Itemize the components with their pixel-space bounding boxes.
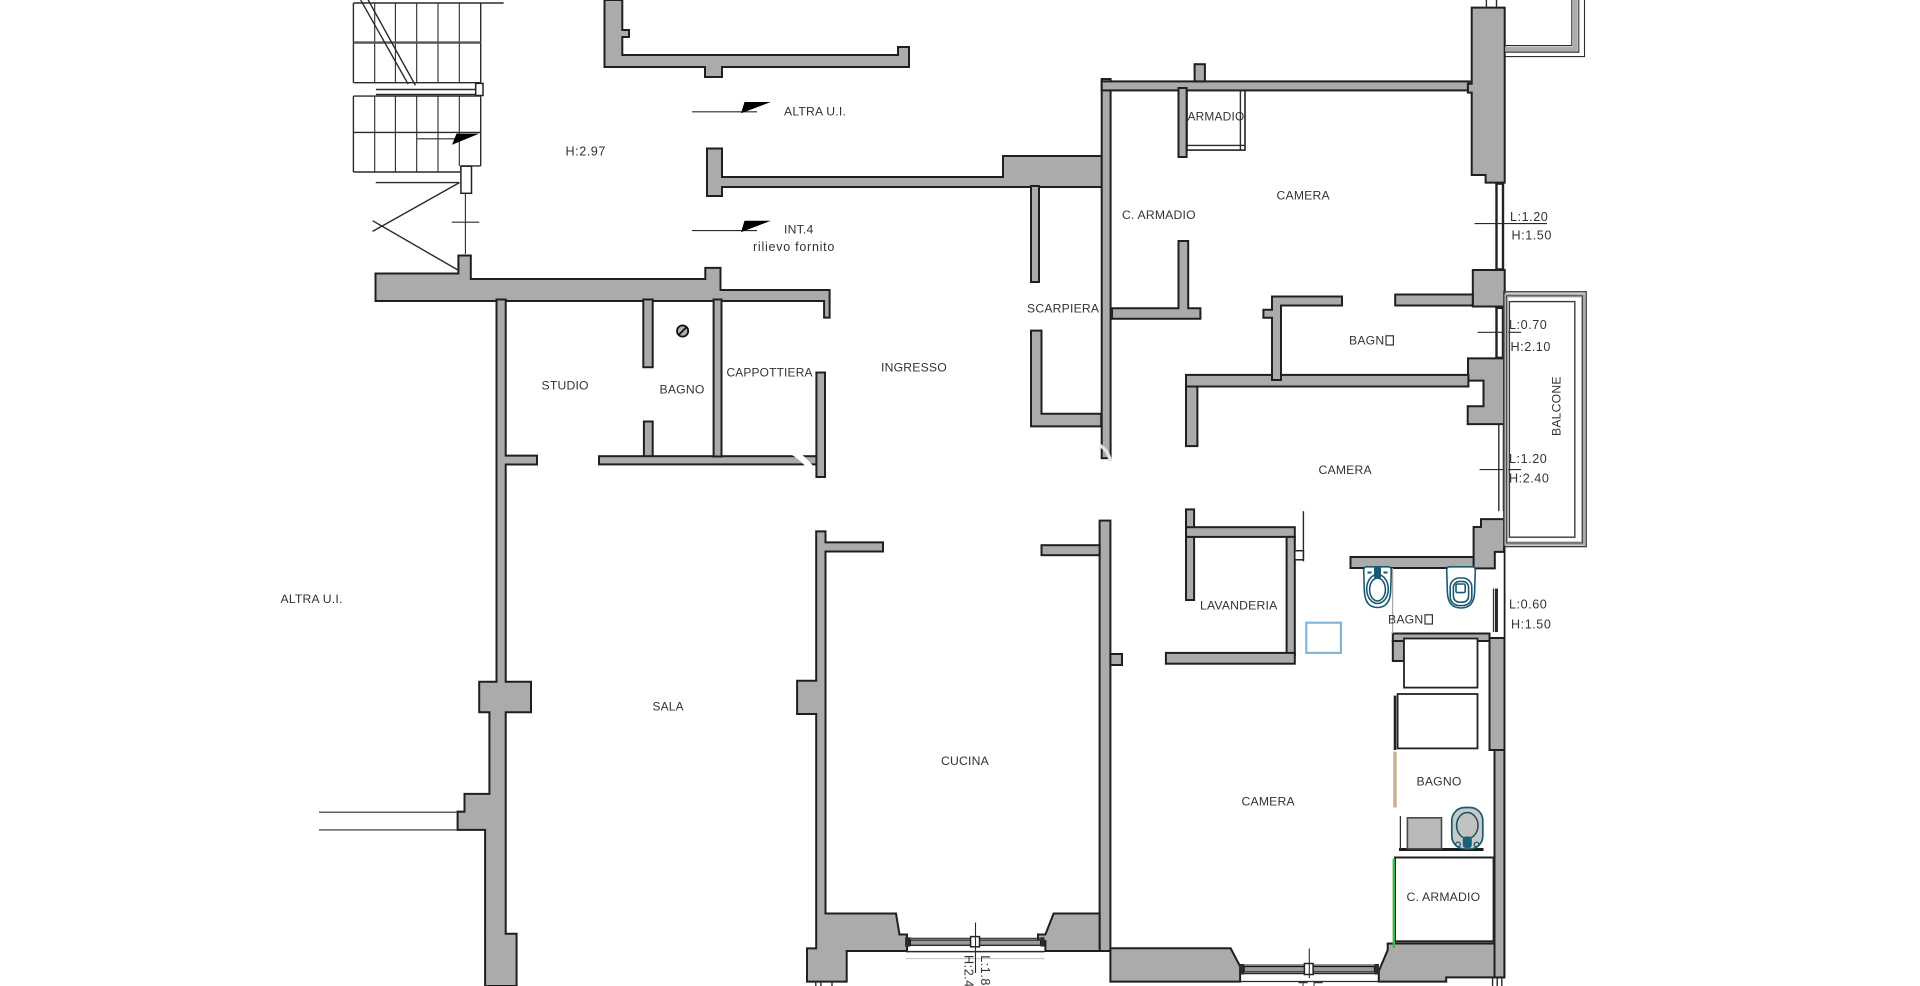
svg-text:SALA: SALA (653, 700, 684, 714)
svg-text:BAGNO: BAGNO (1417, 775, 1462, 789)
svg-text:L:1.20: L:1.20 (1509, 452, 1547, 466)
svg-text:ALTRA U.I.: ALTRA U.I. (281, 592, 343, 606)
svg-text:STUDIO: STUDIO (542, 379, 589, 393)
svg-text:C. ARMADIO: C. ARMADIO (1407, 890, 1481, 904)
svg-text:L:1.20: L:1.20 (1510, 210, 1548, 224)
svg-text:H:2.10: H:2.10 (1511, 340, 1551, 354)
svg-text:C. ARMADIO: C. ARMADIO (1122, 208, 1196, 222)
svg-text:H:2.40: H:2.40 (1509, 472, 1549, 486)
svg-text:BALCONE: BALCONE (1550, 376, 1564, 436)
svg-text:rilievo fornito: rilievo fornito (753, 240, 835, 254)
svg-text:H:2.4: H:2.4 (962, 955, 976, 986)
svg-text:CUCINA: CUCINA (941, 754, 990, 768)
svg-text:L:0.70: L:0.70 (1509, 318, 1547, 332)
svg-text:H:2.97: H:2.97 (566, 145, 606, 159)
svg-text:INT.4: INT.4 (784, 223, 813, 237)
svg-text:BAGN: BAGN (1349, 334, 1384, 348)
svg-text:INGRESSO: INGRESSO (881, 361, 947, 375)
svg-text:BAGN: BAGN (1388, 613, 1423, 627)
svg-text:CAPPOTTIERA: CAPPOTTIERA (727, 366, 813, 380)
svg-text:ALTRA U.I.: ALTRA U.I. (784, 105, 846, 119)
svg-text:ARMADIO: ARMADIO (1188, 110, 1245, 124)
svg-text:CAMERA: CAMERA (1277, 189, 1331, 203)
svg-text:L:1.8: L:1.8 (978, 955, 992, 986)
svg-text:SCARPIERA: SCARPIERA (1027, 302, 1100, 316)
svg-text:L:1.8: L:1.8 (1311, 981, 1325, 986)
svg-text:L:0.60: L:0.60 (1509, 598, 1547, 612)
svg-text:CAMERA: CAMERA (1242, 795, 1296, 809)
svg-text:LAVANDERIA: LAVANDERIA (1200, 599, 1278, 613)
svg-text:H:1.50: H:1.50 (1511, 618, 1551, 632)
svg-text:H:1.50: H:1.50 (1512, 228, 1552, 242)
svg-text:BAGNO: BAGNO (660, 383, 705, 397)
svg-text:CAMERA: CAMERA (1319, 463, 1373, 477)
svg-text:H:2.4: H:2.4 (1296, 981, 1310, 986)
